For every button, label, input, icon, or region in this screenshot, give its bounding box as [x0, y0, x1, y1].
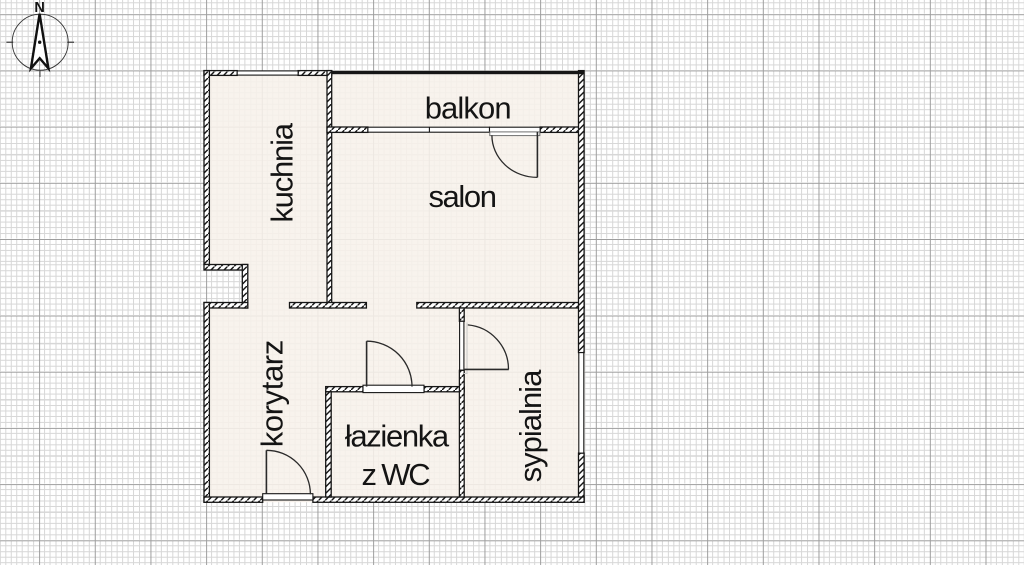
svg-text:salon: salon	[428, 179, 495, 214]
svg-text:sypialnia: sypialnia	[513, 369, 548, 482]
svg-text:kuchnia: kuchnia	[265, 122, 300, 222]
svg-text:korytarz: korytarz	[255, 340, 290, 447]
svg-text:balkon: balkon	[425, 90, 511, 125]
svg-text:łazienka: łazienka	[345, 419, 450, 454]
svg-text:z WC: z WC	[362, 457, 431, 492]
svg-text:N: N	[34, 0, 44, 16]
